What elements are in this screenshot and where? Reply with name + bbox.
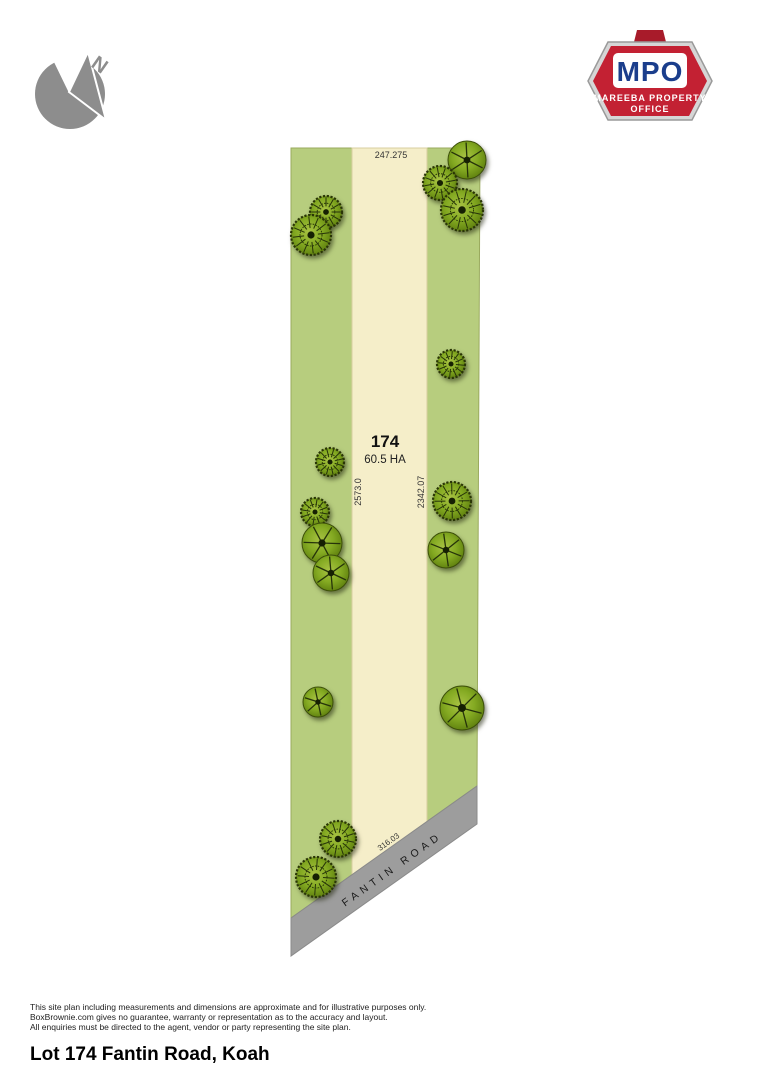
tree (303, 687, 333, 717)
lot-clearing-strip (352, 148, 427, 875)
lot-number-label: 174 (371, 432, 400, 451)
dimension-right: 2342.07 (416, 476, 426, 509)
site-plan-drawing: 247.275 2573.0 2342.07 316.03 174 60.5 H… (0, 0, 764, 1080)
tree (428, 532, 464, 568)
tree (313, 555, 349, 591)
tree (441, 189, 483, 231)
site-plan-page: N MPO MAREEBA PROPERTY OFFICE 247.275 25… (0, 0, 764, 1080)
disclaimer-line: BoxBrownie.com gives no guarantee, warra… (30, 1012, 426, 1022)
tree (296, 857, 336, 897)
disclaimer-line: All enquiries must be directed to the ag… (30, 1022, 426, 1032)
disclaimer-line: This site plan including measurements an… (30, 1002, 426, 1012)
dimension-top: 247.275 (375, 150, 408, 160)
tree (320, 821, 356, 857)
lot-area-label: 60.5 HA (364, 454, 406, 466)
tree (437, 350, 465, 378)
tree (433, 482, 471, 520)
disclaimer-text: This site plan including measurements an… (30, 1002, 426, 1033)
tree (440, 686, 484, 730)
dimension-left: 2573.0 (353, 478, 363, 506)
tree (291, 215, 331, 255)
tree (316, 448, 344, 476)
tree (301, 498, 329, 526)
page-title: Lot 174 Fantin Road, Koah (30, 1044, 270, 1066)
